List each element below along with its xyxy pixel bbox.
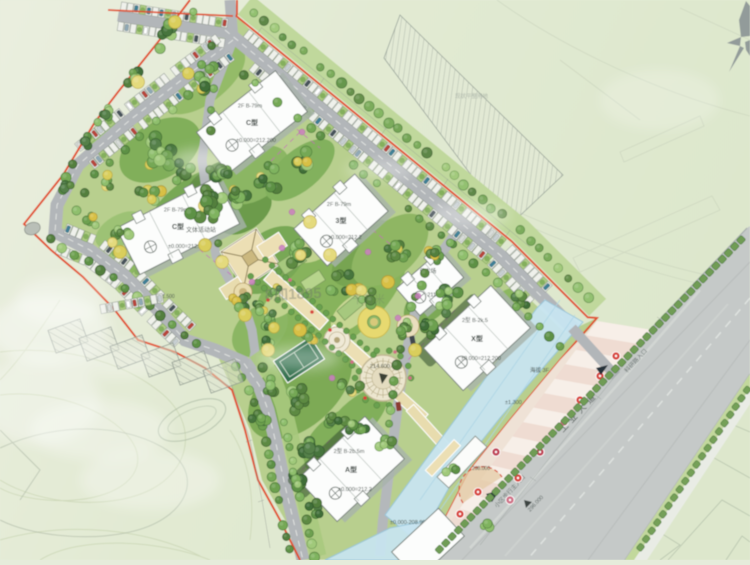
svg-text:X型: X型 (471, 334, 483, 343)
svg-text:2F B-79m: 2F B-79m (238, 103, 263, 109)
svg-text:C型: C型 (172, 222, 184, 231)
svg-text:2型 B-2b.5m: 2型 B-2b.5m (334, 447, 365, 455)
svg-text:文体活动站: 文体活动站 (186, 226, 216, 234)
svg-text:2型 B-2k.5: 2型 B-2k.5 (462, 316, 488, 324)
svg-text:8加1895: 8加1895 (265, 285, 322, 304)
svg-text:214.600: 214.600 (370, 364, 390, 370)
svg-text:3型: 3型 (336, 216, 347, 225)
svg-text:海拔 3F: 海拔 3F (530, 366, 550, 374)
svg-text:±0.000=212.200: ±0.000=212.200 (461, 356, 501, 362)
svg-text:2F B-79m: 2F B-79m (327, 202, 352, 208)
svg-text:298.000: 298.000 (472, 466, 490, 472)
svg-text:C型: C型 (246, 118, 258, 127)
svg-text:±0.000=212.2: ±0.000=212.2 (338, 487, 372, 493)
svg-text:千万米: 千万米 (352, 293, 385, 306)
svg-text:±0.000=212.200: ±0.000=212.200 (236, 138, 276, 144)
svg-text:±1.300: ±1.300 (505, 400, 522, 406)
svg-text:A型: A型 (345, 465, 357, 474)
svg-text:现状平整用地: 现状平整用地 (455, 92, 489, 100)
svg-text:±0.000=212.2: ±0.000=212.2 (328, 235, 362, 241)
